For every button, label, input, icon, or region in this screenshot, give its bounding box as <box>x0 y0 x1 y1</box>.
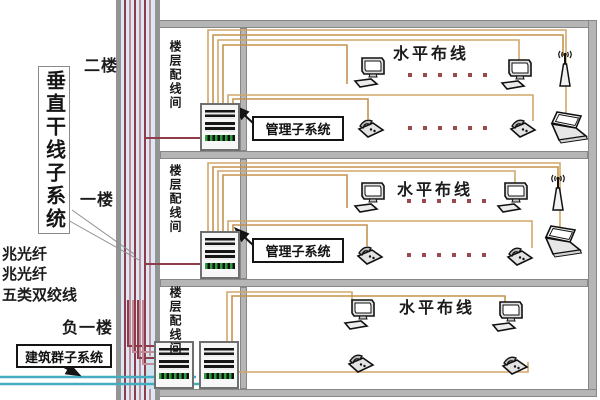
fiber-label-1: 兆光纤 <box>2 243 47 264</box>
floor1-slab <box>160 279 588 287</box>
equipment-rack-floor2 <box>200 103 240 151</box>
management-subsystem-label: 管理子系统 <box>265 119 330 138</box>
floor2-label: 二楼 <box>84 52 118 76</box>
basement-label: 负一楼 <box>62 314 113 338</box>
wireless-antenna-icon <box>545 172 571 212</box>
backbone-cable <box>139 0 141 400</box>
desktop-computer-icon <box>496 181 534 213</box>
backbone-cable <box>144 0 146 400</box>
telephone-icon <box>346 351 376 375</box>
device-ellipsis <box>407 253 486 257</box>
floor2-room-wall <box>240 28 247 151</box>
telephone-icon <box>356 116 386 140</box>
campus-subsystem-label: 建筑群子系统 <box>25 347 103 366</box>
horizontal-cabling-label-floor1: 水平布线 <box>397 176 473 200</box>
backbone-cable <box>129 0 131 400</box>
telephone-icon <box>508 116 538 140</box>
backbone-riser-shaft <box>116 0 160 400</box>
backbone-cable <box>134 0 136 400</box>
backbone-cable <box>149 0 151 400</box>
campus-subsystem-box: 建筑群子系统 <box>16 344 112 368</box>
floor2-slab <box>160 151 588 159</box>
floor2-wiring-room-label: 楼层配线间 <box>167 40 184 122</box>
desktop-computer-icon <box>353 181 391 213</box>
desktop-computer-icon <box>353 56 391 88</box>
desktop-computer-icon <box>491 300 529 332</box>
floor1-wiring-room-label: 楼层配线间 <box>167 164 184 246</box>
building-right-wall <box>588 20 597 397</box>
floor1-label: 一楼 <box>80 186 114 210</box>
device-ellipsis <box>407 199 486 203</box>
telephone-icon <box>500 353 530 377</box>
telephone-icon <box>505 244 535 268</box>
management-subsystem-box-floor2: 管理子系统 <box>252 116 344 141</box>
fiber-label-2: 兆光纤 <box>2 263 47 284</box>
management-subsystem-label: 管理子系统 <box>265 241 330 260</box>
device-ellipsis <box>408 73 487 77</box>
horizontal-cabling-label-floor2: 水平布线 <box>393 40 469 64</box>
desktop-computer-icon <box>343 298 381 330</box>
equipment-rack-basement-2 <box>199 341 239 389</box>
backbone-cable <box>124 0 126 400</box>
building-floor-wall <box>116 389 597 397</box>
basement-room-wall <box>240 287 247 389</box>
basement-wiring-room-label: 楼层配线间 <box>167 286 184 368</box>
laptop-icon <box>546 110 590 144</box>
device-ellipsis <box>408 126 487 130</box>
desktop-computer-icon <box>500 58 538 90</box>
horizontal-cabling-label-basement: 水平布线 <box>399 294 475 318</box>
telephone-icon <box>355 243 385 267</box>
floor1-room-wall <box>240 159 247 279</box>
equipment-rack-floor1 <box>200 231 240 279</box>
vertical-backbone-label-box: 垂直干线子系统 <box>38 66 70 234</box>
vertical-backbone-label: 垂直干线子系统 <box>40 70 69 231</box>
twisted-pair-label: 五类双绞线 <box>2 284 77 305</box>
laptop-icon <box>540 224 584 258</box>
cabling-system-diagram: 垂直干线子系统 二楼 一楼 负一楼 兆光纤 兆光纤 五类双绞线 建筑群子系统 楼… <box>0 0 600 400</box>
building-roof <box>116 20 597 28</box>
wireless-antenna-icon <box>552 48 578 88</box>
management-subsystem-box-floor1: 管理子系统 <box>252 238 344 263</box>
